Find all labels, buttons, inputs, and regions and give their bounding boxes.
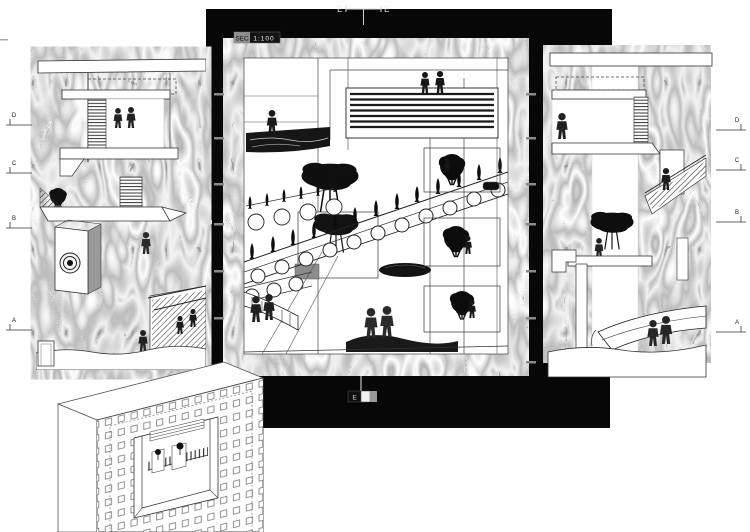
left-balcony-slab <box>62 90 170 99</box>
right-louver <box>634 97 648 145</box>
left-mid-slab <box>40 207 170 221</box>
svg-text:A: A <box>735 320 739 326</box>
svg-text:D: D <box>735 118 740 124</box>
facade-axonometric-cube <box>58 362 263 532</box>
level-marker-right-b: B <box>716 210 746 222</box>
page-edge-tick <box>0 39 8 41</box>
center-perspective-panel: SEC 1:100 <box>232 32 520 366</box>
section-marker-top-left-label: E <box>337 5 343 14</box>
left-roof-slab <box>38 59 206 73</box>
svg-text:A: A <box>12 318 16 324</box>
level-markers-left: D C B A <box>6 113 32 330</box>
level-marker-right-a: A <box>716 320 746 332</box>
right-roof-slab <box>550 53 712 66</box>
svg-text:B: B <box>12 216 16 222</box>
svg-text:D: D <box>12 113 17 119</box>
cube-left-face <box>58 404 97 532</box>
drawing-svg: SEC 1:100 <box>0 0 750 532</box>
left-louver <box>88 99 106 149</box>
right-column <box>576 264 587 356</box>
level-markers-right: D C B A <box>716 118 746 332</box>
level-marker-right-c: C <box>716 158 746 170</box>
left-section-panel <box>36 56 206 370</box>
right-balcony-slab <box>552 90 646 99</box>
svg-text:C: C <box>12 161 17 167</box>
center-louver-panel <box>346 88 498 138</box>
svg-text:C: C <box>735 158 740 164</box>
level-marker-left-c: C <box>6 161 32 173</box>
svg-text:B: B <box>735 210 739 216</box>
right-section-panel <box>548 53 712 377</box>
scale-badge-value: 1:100 <box>253 36 274 43</box>
level-marker-left-d: D <box>6 113 32 125</box>
scale-badge: SEC 1:100 <box>234 32 280 43</box>
right-floor-slab <box>552 143 660 154</box>
level-marker-left-a: A <box>6 318 32 330</box>
left-floor-slab <box>60 148 178 159</box>
section-marker-bottom-label: E <box>352 395 357 402</box>
level-marker-right-d: D <box>716 118 746 130</box>
section-marker-top-right-label: E <box>384 5 390 14</box>
architectural-presentation-sheet: SEC 1:100 <box>0 0 750 532</box>
scale-badge-prefix: SEC <box>235 36 249 43</box>
level-marker-left-b: B <box>6 216 32 228</box>
